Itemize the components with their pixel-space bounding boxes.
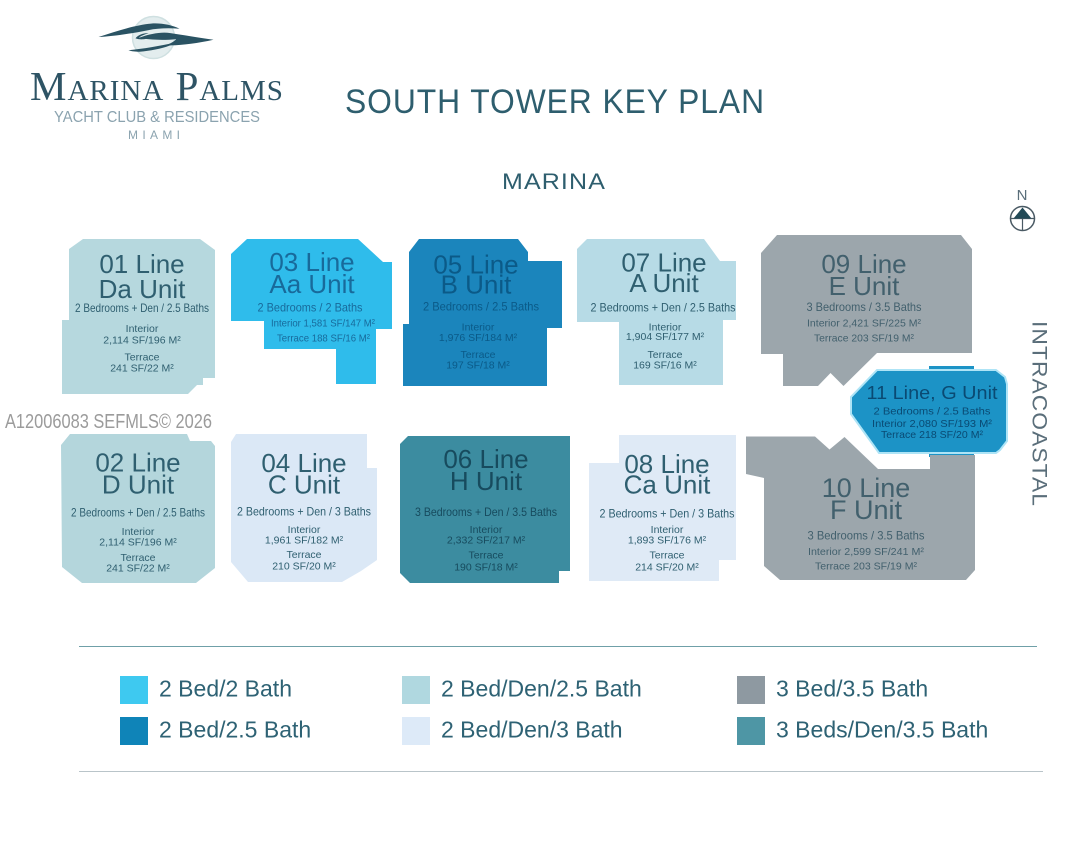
svg-text:197 SF/18 M²: 197 SF/18 M²: [446, 360, 510, 372]
svg-text:H Unit: H Unit: [450, 466, 523, 496]
svg-text:2 Bedrooms + Den / 3 Baths: 2 Bedrooms + Den / 3 Baths: [237, 505, 371, 519]
svg-text:A Unit: A Unit: [629, 268, 699, 298]
svg-text:2 Bed/Den/3 Bath: 2 Bed/Den/3 Bath: [441, 717, 623, 743]
svg-text:N: N: [1017, 187, 1028, 204]
svg-text:Aa Unit: Aa Unit: [269, 269, 355, 299]
svg-text:Terrace 188 SF/16 M²: Terrace 188 SF/16 M²: [277, 333, 370, 345]
svg-text:2 Bedrooms / 2 Baths: 2 Bedrooms / 2 Baths: [258, 301, 363, 315]
svg-text:Terrace: Terrace: [649, 550, 684, 562]
svg-text:3 Beds/Den/3.5 Bath: 3 Beds/Den/3.5 Bath: [776, 717, 988, 743]
svg-text:241 SF/22 M²: 241 SF/22 M²: [110, 363, 174, 375]
svg-text:2 Bedrooms / 2.5 Baths: 2 Bedrooms / 2.5 Baths: [423, 300, 539, 314]
svg-text:Terrace 203 SF/19 M²: Terrace 203 SF/19 M²: [815, 561, 917, 573]
svg-text:214 SF/20 M²: 214 SF/20 M²: [635, 562, 699, 574]
svg-text:2,332 SF/217 M²: 2,332 SF/217 M²: [447, 535, 526, 547]
svg-text:2 Bedrooms + Den / 2.5 Baths: 2 Bedrooms + Den / 2.5 Baths: [591, 301, 736, 315]
svg-text:2 Bed/Den/2.5 Bath: 2 Bed/Den/2.5 Bath: [441, 676, 642, 702]
svg-text:1,976 SF/184 M²: 1,976 SF/184 M²: [439, 332, 518, 344]
svg-text:D Unit: D Unit: [102, 470, 175, 500]
svg-text:C Unit: C Unit: [268, 470, 341, 500]
svg-text:3 Bedrooms / 3.5 Baths: 3 Bedrooms / 3.5 Baths: [808, 529, 925, 543]
svg-text:YACHT CLUB & RESIDENCES: YACHT CLUB & RESIDENCES: [54, 109, 260, 126]
svg-text:11 Line, G Unit: 11 Line, G Unit: [867, 383, 998, 403]
svg-text:190 SF/18 M²: 190 SF/18 M²: [454, 562, 518, 574]
svg-text:2,114 SF/196 M²: 2,114 SF/196 M²: [103, 335, 181, 347]
svg-text:210 SF/20 M²: 210 SF/20 M²: [272, 561, 336, 573]
svg-text:2 Bed/2 Bath: 2 Bed/2 Bath: [159, 676, 292, 702]
svg-text:MARINA: MARINA: [502, 169, 606, 194]
svg-text:MIAMI: MIAMI: [128, 128, 186, 142]
svg-text:2 Bedrooms / 2.5 Baths: 2 Bedrooms / 2.5 Baths: [874, 406, 991, 418]
svg-text:3 Bed/3.5 Bath: 3 Bed/3.5 Bath: [776, 676, 928, 702]
svg-text:Marina Palms: Marina Palms: [30, 63, 284, 109]
svg-text:3 Bedrooms / 3.5 Baths: 3 Bedrooms / 3.5 Baths: [807, 300, 922, 314]
svg-text:Interior 2,599 SF/241 M²: Interior 2,599 SF/241 M²: [808, 546, 925, 558]
svg-text:2 Bedrooms + Den / 2.5 Baths: 2 Bedrooms + Den / 2.5 Baths: [75, 301, 209, 315]
svg-text:Interior 1,581 SF/147 M²: Interior 1,581 SF/147 M²: [271, 318, 375, 330]
svg-text:241 SF/22 M²: 241 SF/22 M²: [106, 563, 170, 575]
svg-text:Da Unit: Da Unit: [99, 274, 186, 304]
svg-text:2 Bedrooms + Den / 3 Baths: 2 Bedrooms + Den / 3 Baths: [600, 507, 735, 521]
svg-text:Terrace: Terrace: [286, 549, 321, 561]
svg-text:Interior 2,421 SF/225 M²: Interior 2,421 SF/225 M²: [807, 318, 921, 330]
svg-text:1,961 SF/182 M²: 1,961 SF/182 M²: [265, 535, 344, 547]
svg-text:2 Bedrooms + Den / 2.5 Baths: 2 Bedrooms + Den / 2.5 Baths: [71, 506, 205, 520]
svg-text:169 SF/16 M²: 169 SF/16 M²: [633, 360, 697, 372]
svg-text:E Unit: E Unit: [829, 271, 901, 301]
svg-text:B Unit: B Unit: [441, 270, 513, 300]
svg-text:INTRACOASTAL: INTRACOASTAL: [1028, 321, 1051, 507]
svg-text:1,904 SF/177 M²: 1,904 SF/177 M²: [626, 331, 705, 343]
svg-text:1,893 SF/176 M²: 1,893 SF/176 M²: [628, 535, 707, 547]
svg-text:2 Bed/2.5 Bath: 2 Bed/2.5 Bath: [159, 717, 311, 743]
svg-text:Terrace: Terrace: [468, 550, 503, 562]
svg-text:F Unit: F Unit: [830, 495, 903, 525]
svg-text:Terrace 218 SF/20 M²: Terrace 218 SF/20 M²: [881, 429, 983, 441]
svg-text:Terrace 203 SF/19 M²: Terrace 203 SF/19 M²: [814, 333, 914, 345]
svg-text:SOUTH TOWER KEY PLAN: SOUTH TOWER KEY PLAN: [345, 83, 765, 121]
svg-text:Ca Unit: Ca Unit: [624, 470, 711, 500]
svg-text:A12006083 SEFMLS© 2026: A12006083 SEFMLS© 2026: [5, 411, 212, 433]
svg-text:Interior: Interior: [126, 323, 159, 335]
svg-text:2,114 SF/196 M²: 2,114 SF/196 M²: [99, 537, 177, 549]
svg-text:3 Bedrooms + Den / 3.5 Baths: 3 Bedrooms + Den / 3.5 Baths: [415, 505, 557, 519]
